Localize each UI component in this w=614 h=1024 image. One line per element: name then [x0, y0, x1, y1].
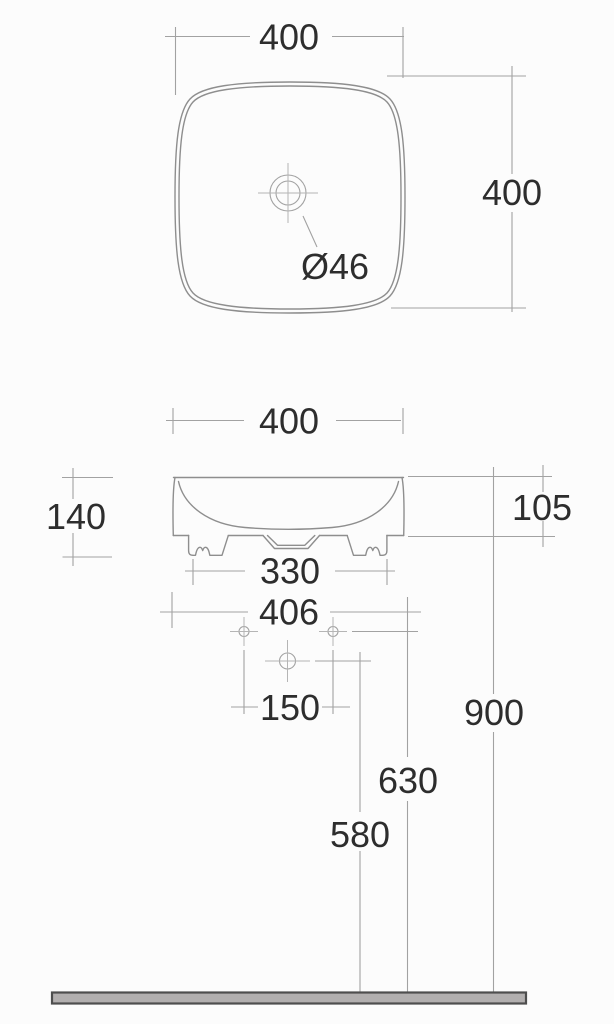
left-foot-outline: [189, 536, 229, 556]
fixing-hole-right-crosshair: [319, 617, 347, 646]
dim-label-top-width: 400: [259, 17, 319, 58]
basin-bowl-curve: [179, 482, 399, 530]
dim-label-drain-height: 580: [330, 814, 390, 855]
dim-label-total-height: 140: [46, 496, 106, 537]
dim-label-body-height: 105: [512, 487, 572, 528]
right-foot-outline: [347, 536, 387, 556]
drain-crosshair: [258, 163, 318, 223]
dim-label-rim-height: 900: [464, 692, 524, 733]
drawing-canvas: 400 400 Ø46 400 140 105 330 406 150 630 …: [0, 0, 614, 1024]
dim-label-front-width: 400: [259, 401, 319, 442]
floor-bar: [52, 993, 526, 1004]
dim-label-feet-span: 330: [260, 551, 320, 592]
basin-outer-outline: [175, 82, 405, 313]
basin-left-edge: [173, 478, 175, 536]
drain-leader-line: [303, 216, 317, 247]
fixing-hole-left-crosshair: [230, 617, 258, 646]
dim-label-hole-spacing: 150: [260, 687, 320, 728]
dim-label-drain-diameter: Ø46: [301, 246, 369, 287]
dimension-labels: 400 400 Ø46 400 140 105 330 406 150 630 …: [46, 17, 572, 856]
dim-label-top-height: 400: [482, 172, 542, 213]
dim-label-overall-width: 406: [259, 592, 319, 633]
basin-right-edge: [402, 478, 404, 536]
dim-label-fixing-holes-height: 630: [378, 760, 438, 801]
waste-outlet-inner: [268, 536, 315, 546]
drain-hole-front-crosshair: [265, 640, 310, 682]
waste-outlet-outer: [263, 536, 320, 549]
